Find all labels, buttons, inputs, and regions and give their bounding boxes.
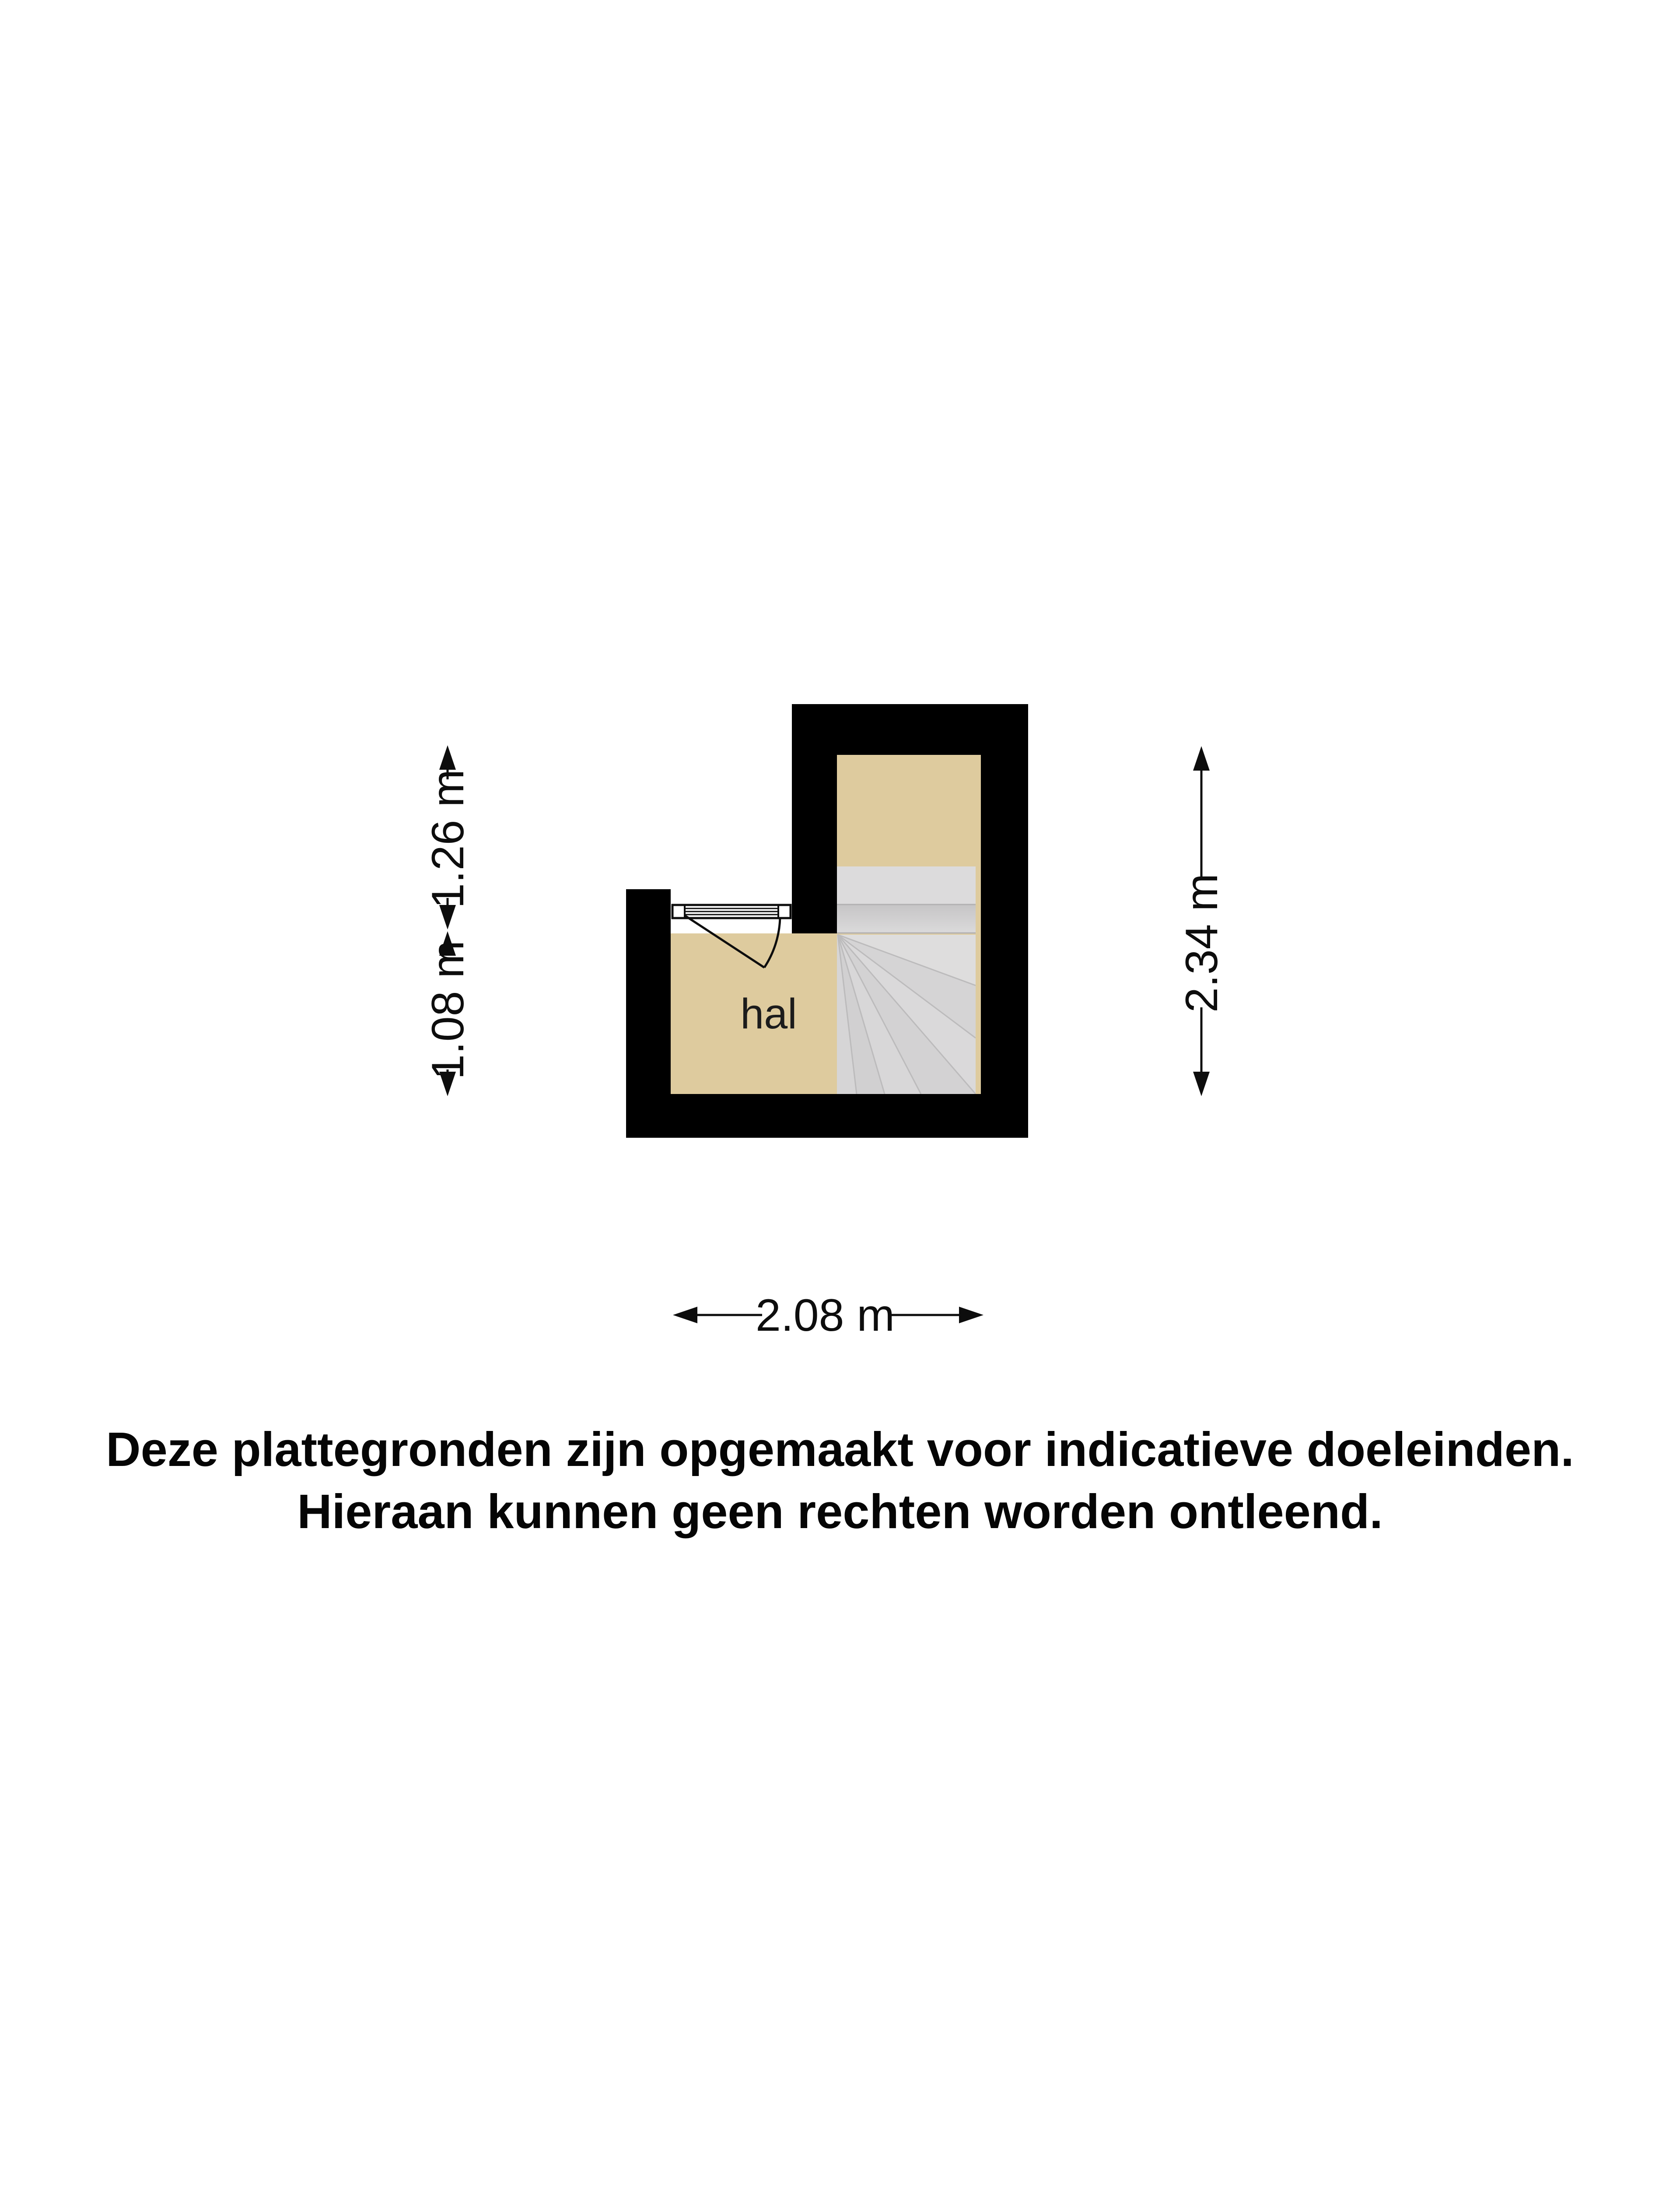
wall-right — [981, 704, 1028, 1138]
room-label-hal: hal — [740, 990, 797, 1038]
arrow-up-icon — [1193, 746, 1210, 771]
page-background: hal 1.26 m 1.08 m 2.34 m 2.08 m Deze pla… — [0, 0, 1680, 2188]
disclaimer: Deze plattegronden zijn opgemaakt voor i… — [106, 1423, 1574, 1539]
arrow-down-icon — [439, 1072, 456, 1096]
stair-winders — [837, 935, 976, 1094]
dimension-bottom: 2.08 m — [673, 1290, 983, 1341]
arrow-up-icon — [439, 745, 456, 770]
stair-step-top — [837, 866, 976, 905]
wall-left — [626, 889, 671, 1094]
disclaimer-line-1: Deze plattegronden zijn opgemaakt voor i… — [106, 1423, 1574, 1476]
wall-stair-left — [792, 704, 837, 933]
wall-bottom — [626, 1094, 1028, 1138]
dim-label-left-upper: 1.26 m — [423, 769, 473, 908]
arrow-right-icon — [959, 1307, 983, 1323]
staircase — [837, 866, 976, 1094]
dimension-right: 2.34 m — [1176, 746, 1227, 1096]
arrow-down-icon — [439, 905, 456, 929]
dimension-left: 1.26 m 1.08 m — [423, 745, 473, 1096]
dim-label-bottom: 2.08 m — [756, 1290, 895, 1341]
floorplan-svg: hal 1.26 m 1.08 m 2.34 m 2.08 m Deze pla… — [0, 0, 1680, 2188]
dim-label-right: 2.34 m — [1176, 873, 1227, 1013]
arrow-down-icon — [1193, 1072, 1210, 1096]
arrow-left-icon — [673, 1307, 697, 1323]
dim-label-left-lower: 1.08 m — [423, 940, 473, 1080]
stair-step-second — [837, 905, 976, 933]
disclaimer-line-2: Hieraan kunnen geen rechten worden ontle… — [297, 1485, 1383, 1539]
